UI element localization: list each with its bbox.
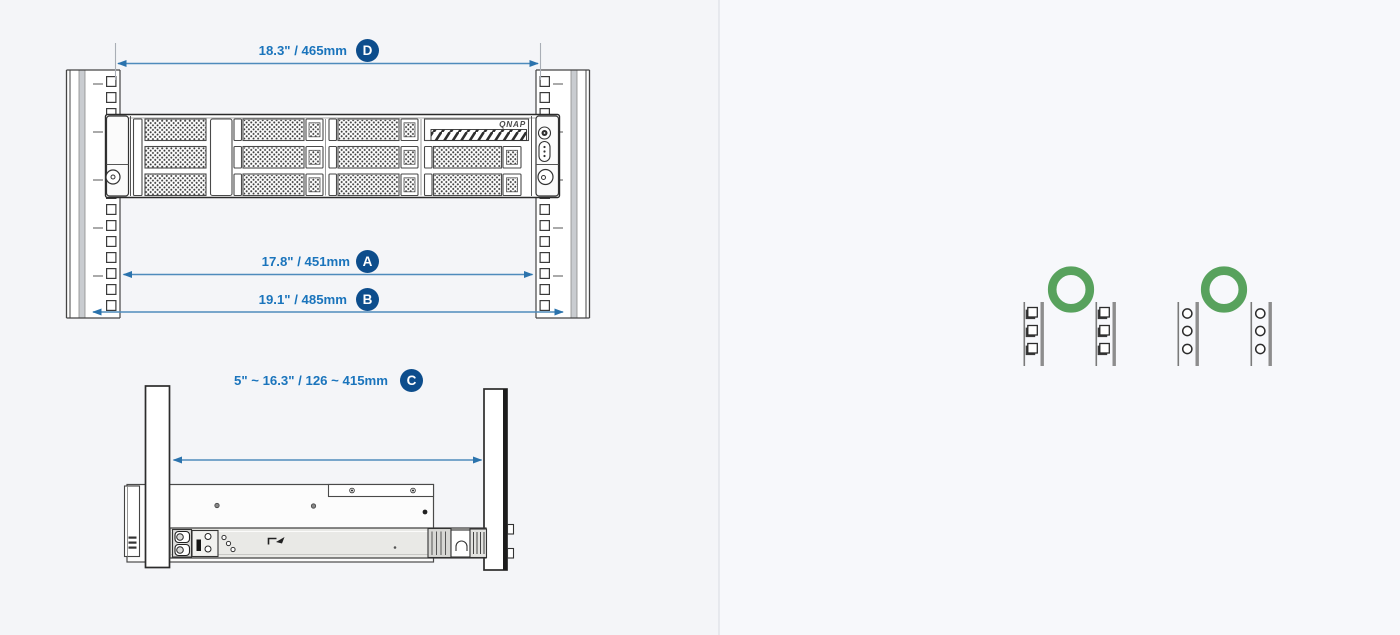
dimension-b-value: 19.1" / 485mm [259,292,347,307]
side-rack-post-left [146,386,170,568]
background-right [720,0,1400,635]
server-ear-right [536,116,559,196]
dimension-c-letter: C [407,373,417,388]
sliding-rail [170,528,487,558]
rack-mount-dimension-sheet: QNAP 18.3" / 465mm [0,0,1400,635]
front-bezel-edge [125,486,140,557]
brand-logo: QNAP [499,120,526,129]
brand-panel: QNAP [425,119,529,141]
server-front: QNAP [106,115,560,198]
chassis-screw [215,503,219,507]
vent-module [134,119,233,196]
thumbscrew-left [106,170,120,184]
dimension-a-value: 17.8" / 451mm [262,254,350,269]
vent-hatch [431,130,527,141]
dimension-a-letter: A [363,254,373,269]
server-ear-left [106,116,129,196]
rail-bracket-rear [428,529,487,558]
dimension-b-letter: B [363,292,373,307]
diagram-canvas: QNAP 18.3" / 465mm [0,0,1400,635]
dimension-c-value: 5" ~ 16.3" / 126 ~ 415mm [234,373,388,388]
chassis-screw [423,510,428,515]
chassis-screw [311,504,315,508]
dimension-d-value: 18.3" / 465mm [259,43,347,58]
dimension-d-letter: D [363,43,373,58]
